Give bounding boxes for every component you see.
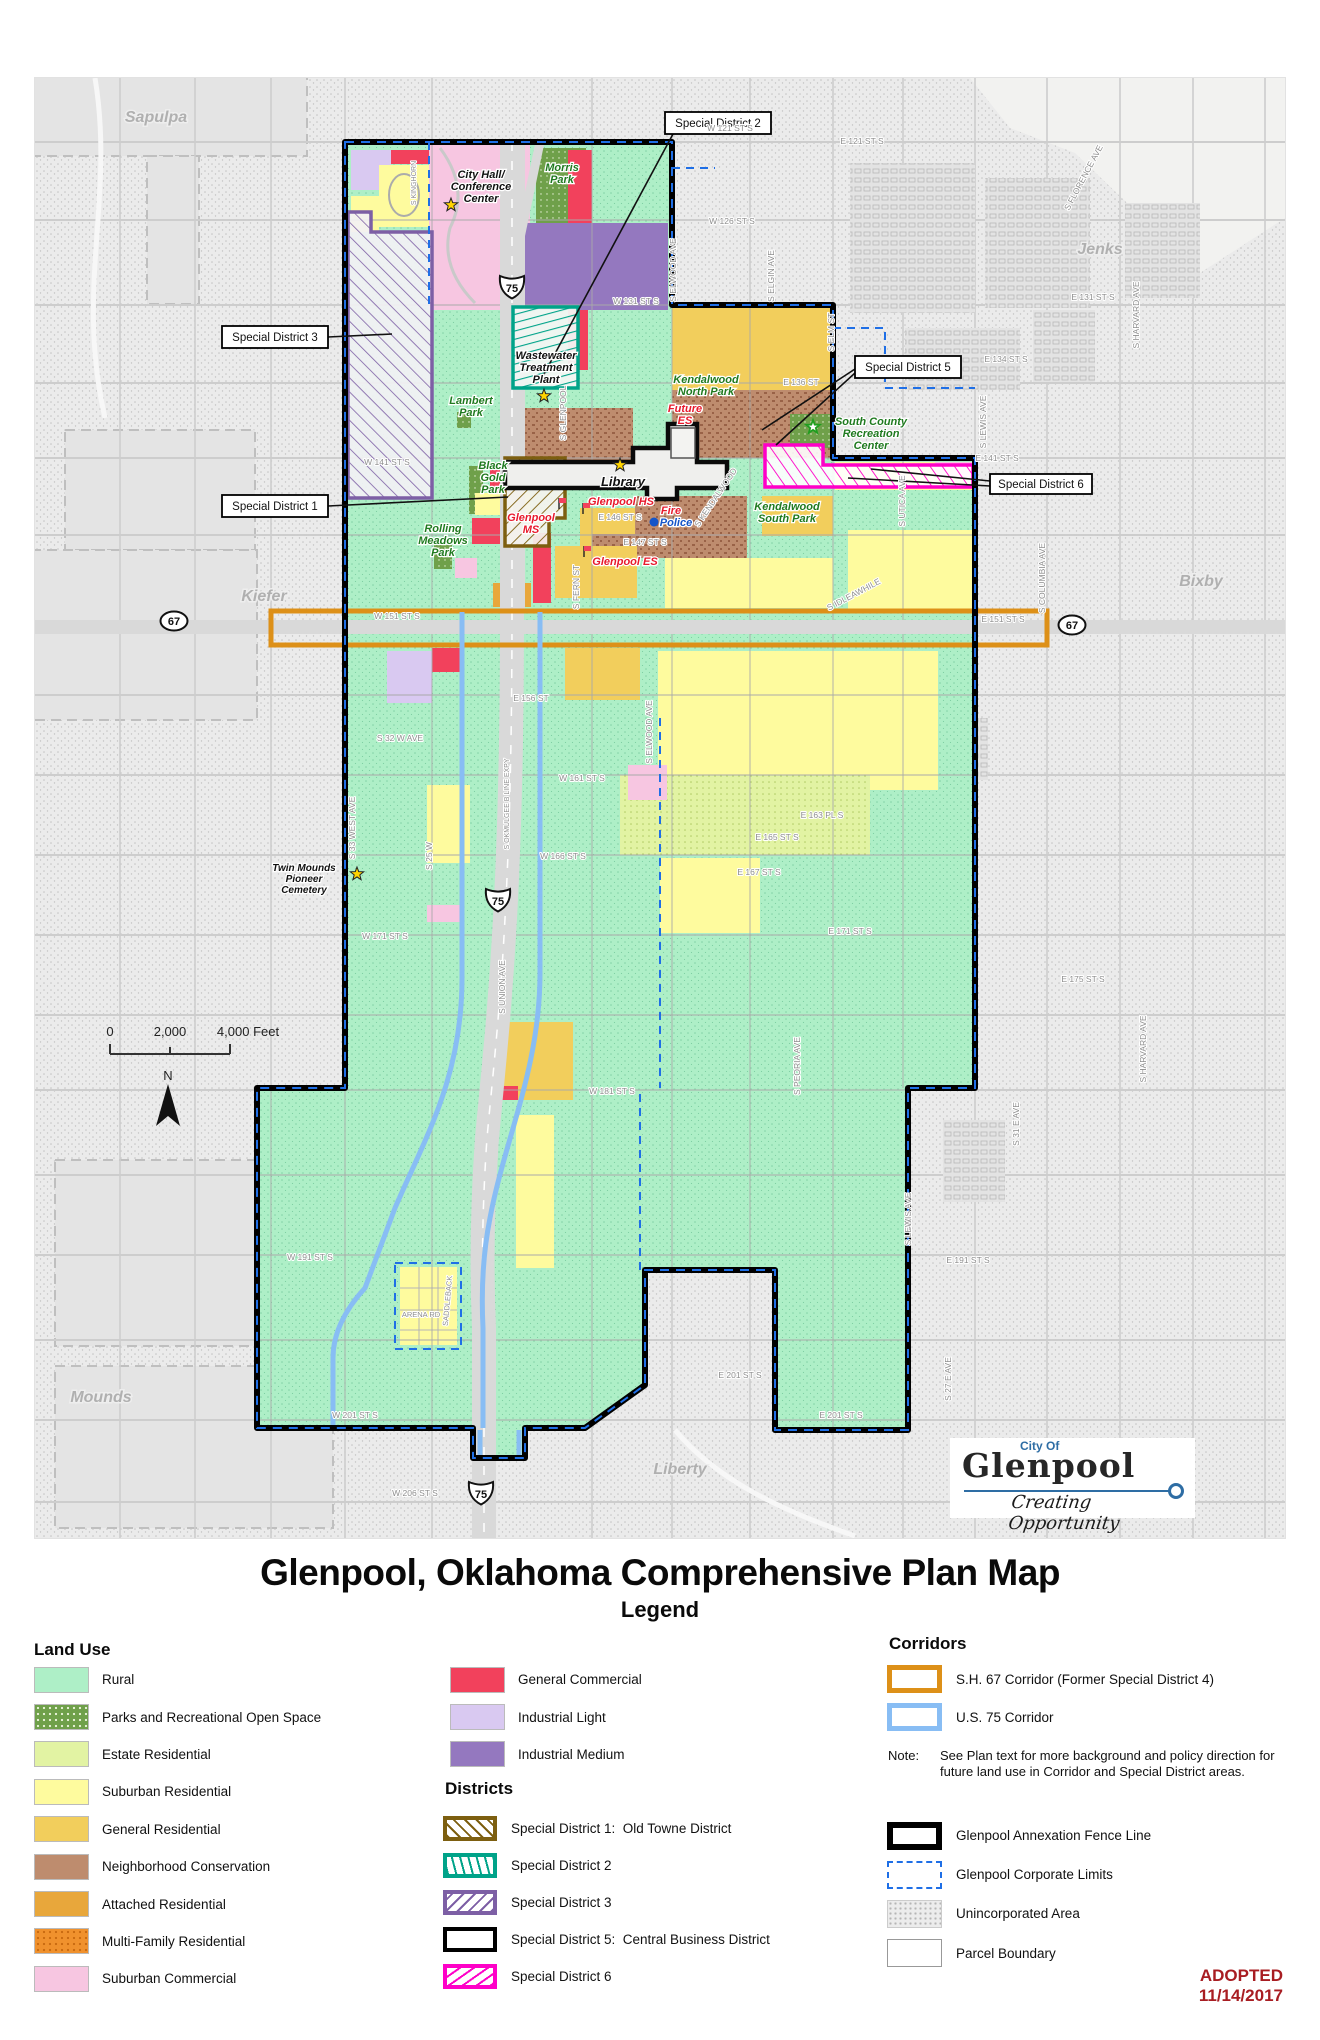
corridor-legend-item: S.H. 67 Corridor (Former Special Distric… (887, 1660, 1214, 1698)
land-use-legend: RuralParks and Recreational Open SpaceEs… (34, 1661, 321, 1998)
street-label: W 131 ST S (613, 296, 659, 306)
legend-label: Industrial Light (518, 1710, 606, 1725)
corridors-heading: Corridors (889, 1634, 966, 1654)
land-use-heading: Land Use (34, 1640, 111, 1660)
place-label: Library (601, 474, 646, 489)
district-swatch (443, 1816, 497, 1841)
legend-swatch (34, 1854, 89, 1880)
place-label: Park (431, 547, 456, 559)
svg-text:67: 67 (1066, 620, 1078, 632)
legend-item: Multi-Family Residential (34, 1923, 321, 1960)
boundary-legend-item: Parcel Boundary (887, 1934, 1151, 1973)
city-label: Mounds (70, 1389, 131, 1406)
street-label: E 171 ST S (828, 926, 872, 936)
svg-text:67: 67 (168, 616, 180, 628)
note-label: Note: (888, 1748, 940, 1781)
street-label: E 134 ST S (984, 354, 1028, 364)
callout-sd5: Special District 5 (865, 362, 951, 374)
adopted-line2: 11/14/2017 (1199, 1986, 1283, 2006)
street-label: W 141 ST S (364, 457, 410, 467)
street-label: W 151 ST S (374, 611, 420, 621)
corridor-swatch (887, 1703, 942, 1731)
place-label: Glenpool HS (588, 496, 655, 508)
street-label: S 27 E AVE (943, 1357, 953, 1401)
street-label: E 175 ST S (1061, 974, 1105, 984)
annex-swatch (887, 1822, 942, 1850)
land-use-legend-col2: General CommercialIndustrial LightIndust… (450, 1661, 642, 1773)
state-route-shield-67: 67 (161, 612, 188, 631)
district-swatch (443, 1890, 497, 1915)
street-label: W 206 ST S (392, 1488, 438, 1498)
place-label: Police (660, 517, 692, 529)
place-label: City Hall/ (457, 169, 506, 181)
legend-title: Legend (0, 1597, 1320, 1623)
callout-sd3: Special District 3 (232, 332, 318, 344)
street-label: E 191 ST S (946, 1255, 990, 1265)
adopted-stamp: ADOPTED 11/14/2017 (1199, 1966, 1283, 2007)
district-legend-item: Special District 6 (443, 1958, 770, 1995)
street-label: E 136 ST (783, 377, 818, 387)
street-label: W 181 ST S (589, 1086, 635, 1096)
district-legend-item: Special District 2 (443, 1847, 770, 1884)
street-label: S LEWIS AVE (978, 395, 988, 448)
legend-swatch (34, 1667, 89, 1693)
place-label: Lambert (449, 395, 494, 407)
legend-item: Estate Residential (34, 1736, 321, 1773)
street-label: E 146 ST S (598, 512, 642, 522)
legend-label: General Commercial (518, 1672, 642, 1687)
note-text: See Plan text for more background and po… (940, 1748, 1284, 1781)
district-label: Special District 2 (511, 1858, 612, 1873)
place-label: Center (464, 193, 500, 205)
place-label: Center (854, 440, 890, 452)
street-label: E 147 ST S (623, 537, 667, 547)
district-legend-item: Special District 5: Central Business Dis… (443, 1921, 770, 1958)
street-label: S LEWIS AVE (903, 1192, 913, 1245)
street-label: S GLENPOOL (558, 385, 568, 440)
legend-swatch (450, 1704, 505, 1730)
city-label: Bixby (1179, 573, 1224, 590)
corridor-label: U.S. 75 Corridor (956, 1710, 1054, 1725)
district-swatch (443, 1927, 497, 1952)
place-label: Kendalwood (754, 501, 820, 513)
place-label: Park (550, 174, 575, 186)
callout-sd6: Special District 6 (998, 479, 1084, 491)
district-legend-item: Special District 3 (443, 1884, 770, 1921)
street-label: S ELM ST (826, 313, 836, 352)
legend-label: Multi-Family Residential (102, 1934, 245, 1949)
place-label: Morris (545, 162, 579, 174)
district-legend-item: Special District 1: Old Towne District (443, 1810, 770, 1847)
street-label: E 121 ST S (840, 136, 884, 146)
north-label: N (163, 1068, 172, 1083)
legend-item: Industrial Medium (450, 1736, 642, 1773)
street-label: E 141 ST S (975, 453, 1019, 463)
street-label: W 166 ST S (540, 851, 586, 861)
place-label: Park (459, 407, 484, 419)
district-label: Special District 1: Old Towne District (511, 1821, 731, 1836)
scale-4000: 4,000 Feet (217, 1024, 280, 1039)
place-label: Glenpool (507, 512, 556, 524)
map-canvas: Special District 2 Special District 3 Sp… (35, 78, 1285, 1538)
legend-item: Industrial Light (450, 1698, 642, 1735)
street-label: W 161 ST S (559, 773, 605, 783)
svg-text:75: 75 (475, 1489, 487, 1501)
street-label: S FERN ST (571, 565, 581, 609)
parcel-swatch (887, 1939, 942, 1967)
place-label: Black (478, 460, 508, 472)
place-label: Kendalwood (673, 374, 739, 386)
place-label: Recreation (843, 428, 900, 440)
legend-item: Parks and Recreational Open Space (34, 1698, 321, 1735)
city-label: Sapulpa (125, 109, 187, 126)
legend-label: Attached Residential (102, 1897, 226, 1912)
legend-swatch (34, 1741, 89, 1767)
legend-swatch (34, 1928, 89, 1954)
city-label: Kiefer (241, 588, 287, 605)
special-district-3-hatch (348, 212, 432, 498)
place-label: Fire (661, 505, 681, 517)
legend-item: General Residential (34, 1811, 321, 1848)
boundary-legend-item: Unincorporated Area (887, 1894, 1151, 1933)
street-label: W 191 ST S (287, 1252, 333, 1262)
district-label: Special District 5: Central Business Dis… (511, 1932, 770, 1947)
corridors-legend: S.H. 67 Corridor (Former Special Distric… (887, 1660, 1214, 1736)
street-label: W 121 ST S (707, 123, 753, 133)
street-label: S PEORIA AVE (792, 1037, 802, 1095)
logo-name: Glenpool (962, 1446, 1135, 1485)
legend-swatch (34, 1816, 89, 1842)
legend-swatch (450, 1741, 505, 1767)
place-label: Treatment (520, 362, 574, 374)
legend-label: General Residential (102, 1822, 221, 1837)
legend-label: Estate Residential (102, 1747, 211, 1762)
glenpool-logo: City Of Glenpool Creating Opportunity (950, 1438, 1195, 1518)
boundary-label: Glenpool Corporate Limits (956, 1867, 1113, 1882)
street-label: S HARVARD AVE (1138, 1015, 1148, 1082)
place-label: Wastewater (516, 350, 578, 362)
street-label: S COLUMBIA AVE (1037, 543, 1047, 614)
legend-label: Parks and Recreational Open Space (102, 1710, 321, 1725)
street-label: W 126 ST S (709, 216, 755, 226)
legend-item: Attached Residential (34, 1885, 321, 1922)
uninc-swatch (887, 1900, 942, 1928)
place-label: Gold (480, 472, 505, 484)
corridor-legend-item: U.S. 75 Corridor (887, 1698, 1214, 1736)
boundary-label: Glenpool Annexation Fence Line (956, 1828, 1151, 1843)
street-label: S HARVARD AVE (1131, 281, 1141, 348)
corp-swatch (887, 1861, 942, 1889)
city-label: Jenks (1077, 241, 1122, 258)
district-label: Special District 3 (511, 1895, 612, 1910)
street-label: E 151 ST S (981, 614, 1025, 624)
place-label: Rolling (424, 523, 462, 535)
street-label: E 156 ST (513, 693, 548, 703)
place-label: Glenpool ES (592, 556, 658, 568)
street-label: S OKMULGEE B LINE EXPY (504, 758, 511, 849)
plan-map: Special District 2 Special District 3 Sp… (35, 78, 1285, 1538)
boundary-legend-item: Glenpool Corporate Limits (887, 1855, 1151, 1894)
state-route-shield-67: 67 (1059, 616, 1086, 635)
street-label: E 167 ST S (737, 867, 781, 877)
legend-swatch (34, 1966, 89, 1992)
legend-swatch (34, 1704, 89, 1730)
street-label: E 201 ST S (718, 1370, 762, 1380)
place-label: Twin Mounds (272, 863, 336, 874)
svg-text:75: 75 (506, 283, 518, 295)
street-label: E 163 PL S (801, 810, 844, 820)
legend-swatch (34, 1891, 89, 1917)
districts-legend: Special District 1: Old Towne DistrictSp… (443, 1810, 770, 1995)
place-label: ES (678, 415, 693, 427)
district-swatch (443, 1964, 497, 1989)
place-label: MS (523, 524, 540, 536)
place-label: Pioneer (286, 874, 324, 885)
legend-swatch (450, 1667, 505, 1693)
svg-text:75: 75 (492, 896, 504, 908)
district-swatch (443, 1853, 497, 1878)
page-title: Glenpool, Oklahoma Comprehensive Plan Ma… (0, 1552, 1320, 1594)
place-label: North Park (678, 386, 735, 398)
future-school-site (671, 428, 695, 458)
street-label: S ELWOOD AVE (644, 700, 654, 764)
district-label: Special District 6 (511, 1969, 612, 1984)
place-label: Conference (451, 181, 512, 193)
place-label: South Park (758, 513, 817, 525)
street-label: S UTICA AVE (897, 475, 907, 527)
place-label: Cemetery (281, 885, 327, 896)
street-label: E 131 ST S (1071, 292, 1115, 302)
scale-2000: 2,000 (154, 1024, 187, 1039)
scale-0: 0 (106, 1024, 113, 1039)
place-label: South County (835, 416, 908, 428)
street-label: S ELGIN AVE (766, 250, 776, 302)
legend-label: Neighborhood Conservation (102, 1859, 270, 1874)
callout-sd1: Special District 1 (232, 501, 318, 513)
street-label: W 201 ST S (332, 1410, 378, 1420)
street-label: S 33 WEST AVE (347, 796, 357, 859)
legend-item: Suburban Residential (34, 1773, 321, 1810)
logo-tagline: Creating Opportunity (1007, 1492, 1198, 1534)
legend-item: Rural (34, 1661, 321, 1698)
legend-item: Suburban Commercial (34, 1960, 321, 1997)
adopted-line1: ADOPTED (1199, 1966, 1283, 1986)
legend-swatch (34, 1779, 89, 1805)
street-label: S KINGHORN (411, 161, 418, 205)
districts-heading: Districts (445, 1779, 513, 1799)
boundary-label: Parcel Boundary (956, 1946, 1056, 1961)
legend-label: Suburban Commercial (102, 1971, 236, 1986)
street-label: ARENA RD (402, 1310, 441, 1319)
place-label: Park (481, 484, 506, 496)
police-station-dot (650, 518, 659, 527)
street-label: S UNION AVE (497, 960, 507, 1014)
place-label: Plant (533, 374, 561, 386)
legend-note: Note: See Plan text for more background … (888, 1748, 1284, 1781)
street-label: E 201 ST S (819, 1410, 863, 1420)
street-label: E 165 ST S (755, 832, 799, 842)
street-label: W 171 ST S (362, 931, 408, 941)
boundaries-legend: Glenpool Annexation Fence LineGlenpool C… (887, 1816, 1151, 1973)
street-label: S 25 W (424, 842, 434, 870)
place-label: Future (668, 403, 702, 415)
street-label: S 31 E AVE (1011, 1102, 1021, 1146)
city-label: Liberty (653, 1461, 707, 1478)
place-label: Meadows (418, 535, 468, 547)
legend-label: Suburban Residential (102, 1784, 231, 1799)
legend-item: General Commercial (450, 1661, 642, 1698)
legend-label: Industrial Medium (518, 1747, 625, 1762)
legend-label: Rural (102, 1672, 134, 1687)
street-label: S ELWOOD AVE (668, 238, 678, 302)
corridor-label: S.H. 67 Corridor (Former Special Distric… (956, 1672, 1214, 1687)
legend-item: Neighborhood Conservation (34, 1848, 321, 1885)
street-label: S 32 W AVE (377, 733, 423, 743)
boundary-label: Unincorporated Area (956, 1906, 1080, 1921)
corridor-swatch (887, 1665, 942, 1693)
boundary-legend-item: Glenpool Annexation Fence Line (887, 1816, 1151, 1855)
